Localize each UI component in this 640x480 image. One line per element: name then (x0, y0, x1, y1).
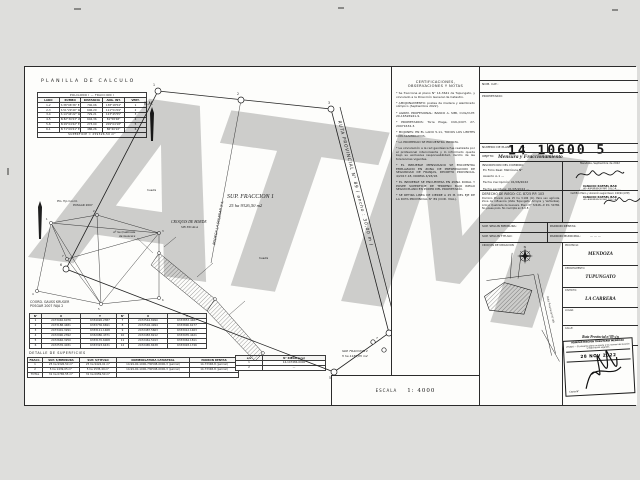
dominio-row: INSCRIPCION DEL DOMINIO: En Folio Real: … (480, 162, 638, 191)
note-line: * LA PROPIEDAD SE ENCUENTRA INCULTA. (396, 141, 475, 145)
signature-block-1: Mendoza, Septiembre de 2022 IGNACIO RAFA… (563, 162, 637, 191)
departamento-value: TUPUNGATO (563, 275, 638, 280)
north-tick-icon (38, 201, 42, 239)
visado-stamp: ADMINISTRACION TRIBUTARIA MENDOZA VISADO… (563, 337, 636, 397)
provincia-row: PROVINCIA: MENDOZA (562, 243, 638, 266)
croquis-borde-title: CROQUIS DE BORDE (171, 220, 207, 224)
border-detail-sketch: CROQUIS DE BORDE SIN ESCALA Aº Sa Quebra… (112, 220, 264, 361)
note-line: * EL INMUEBLE MENSURADO SE ENCUENTRA EMP… (396, 164, 475, 178)
padron-municipal-label: PADRON MUNICIPAL: (550, 234, 581, 238)
propietario-row: PROPIETARIO: 14 10600 5 (480, 93, 638, 144)
registration-mark (338, 7, 344, 9)
registration-mark (612, 9, 618, 11)
sup-titulo-row: SUP. SEGUN TITULO: PADRON MUNICIPAL: — —… (480, 233, 638, 243)
road-edge (340, 107, 397, 329)
propietario-label: PROPIETARIO: (482, 94, 503, 98)
padron-municipal-value: — — — (590, 234, 601, 238)
lugar-row: LUGAR: (562, 308, 638, 326)
distrito-label: DISTRITO: (565, 289, 577, 292)
riego-row: DERECHO DE RIEGO: CC. 8725 P.P. 103 Domi… (480, 191, 638, 223)
vertex-number: 7 (376, 336, 378, 340)
plano-number-label: NUMERO DE PLANO: (482, 145, 513, 149)
lugar-label: LUGAR: (565, 309, 574, 312)
riego-text: Dominio Privado para 25 ha 3.196 (m). Pa… (482, 197, 560, 210)
north-arrow-icon: N.M. (144, 101, 154, 141)
certifications-notes: * Se fracciona el plano N° 14-3641 de Tu… (392, 88, 479, 202)
sup-mensura-label: SUP. SEGUN MENSURA: (482, 224, 517, 228)
note-line: * SE RETIRA LINEA DE CIERRE A 25 M. DEL … (396, 194, 475, 201)
location-sketch: Ruta Provincial N° 89 (480, 243, 562, 405)
note-line: Asiento A-1 — (483, 175, 529, 179)
objeto-value: Mensura y Fraccionamiento (498, 154, 563, 160)
neighbour-label: BODEGA LA SOLEDAD S.A. (212, 200, 225, 245)
sup-mensura-row: SUP. SEGUN MENSURA: PADRON RENTAS: (480, 223, 638, 233)
certifications-column: CERTIFICACIONES, OBSERVACIONES Y NOTAS *… (391, 67, 479, 375)
signature-block-2: Certifico Plano y ubicación según Resol.… (563, 192, 637, 222)
node-label: 1 (46, 217, 48, 221)
distrito-row: DISTRITO: LA CARRERA (562, 288, 638, 308)
vertex-number: 3 (328, 101, 330, 105)
signature-date: Mendoza, Septiembre de 2022 (563, 162, 637, 165)
plano-number-value: 14- (520, 145, 525, 149)
calle-label: CALLE: (565, 327, 573, 330)
vertex-number: 1 (153, 83, 155, 87)
parcel-title: SUP. FRACCION 1 (227, 194, 274, 200)
top-strip (480, 67, 638, 81)
vertex-number: 2 (237, 92, 239, 96)
certifications-title: CERTIFICACIONES, OBSERVACIONES Y NOTAS (392, 80, 479, 88)
plan-sheet: PLANILLA DE CALCULO POLIGONO I — FRACCIO… (24, 66, 636, 406)
objeto-row: OBJETO: Mensura y Fraccionamiento (480, 153, 638, 162)
note-line: * MOJONES: EN EL LADO 5-11, TODOS LOS LI… (396, 131, 475, 138)
note-line: * EL INMUEBLE SE ENCUENTRA EN ZONA RURAL… (396, 181, 475, 192)
plano-number-row: NUMERO DE PLANO: 14- (480, 144, 638, 153)
scale-value: 1: 4000 (407, 388, 435, 394)
croquis-borde-sub: SIN ESCALA (181, 225, 198, 229)
provincia-value: MENDOZA (563, 252, 638, 257)
node-label: 4 (32, 292, 34, 296)
note-line: * AGRIM. PROFESIONAL: BANCO A. SIMI, CUI… (396, 112, 475, 119)
departamento-row: DEPARTAMENTO: TUPUNGATO (562, 266, 638, 288)
note-line: Fecha inscripción: 01/06/2022 (483, 181, 529, 185)
scanned-plan-page: PLANILLA DE CALCULO POLIGONO I — FRACCIO… (0, 0, 640, 480)
certifications-title-line: OBSERVACIONES Y NOTAS (408, 84, 463, 88)
note-line: * Se fracciona el plano N° 14-3641 de Tu… (396, 92, 475, 99)
padron-rentas-label: PADRON RENTAS: (550, 224, 576, 228)
provincia-label: PROVINCIA: (565, 244, 579, 247)
objeto-label: OBJETO: (482, 154, 494, 158)
huella-label: huella (147, 188, 156, 192)
distrito-value: LA CARRERA (563, 297, 638, 302)
registration-mark (7, 168, 9, 175)
note-line: * AMOJONAMIENTO: postes de madera y alam… (396, 102, 475, 109)
road-label: RUTA PROVINCIAL N° 89 ( ancho : 30,00 m … (336, 120, 374, 247)
table-cell: TOTAL (28, 372, 43, 377)
parcel2-area: 5 ha 1439,05 m2 (342, 354, 368, 358)
huella-label: huella (259, 256, 268, 260)
note-line: * PROPIETARIOS: Torre Plage, CUIL/CUIT. … (396, 121, 475, 128)
vertex-number: 6 (60, 263, 62, 267)
registration-mark (74, 8, 81, 10)
title-block: NOM. CAT.: PROPIETARIO: 14 10600 5 NUMER… (479, 67, 637, 405)
scale-box: ESCALA 1: 4000 (331, 375, 479, 405)
riego-label: DERECHO DE RIEGO: CC. 8725 P.P. 103 (482, 192, 544, 196)
signature-scribble-icon (574, 168, 626, 180)
sup-titulo-label: SUP. SEGUN TITULO: (482, 234, 513, 238)
departamento-label: DEPARTAMENTO: (565, 267, 585, 270)
note-line: * La vinculación a la red geodésica fue … (396, 147, 475, 161)
arroyo-label: de Guevara (119, 234, 136, 238)
parcel-area: 25 ha 9326,50 m2 (229, 203, 263, 209)
dominio-label: INSCRIPCION DEL DOMINIO: (482, 163, 524, 167)
nom-cat-label: NOM. CAT.: (482, 82, 498, 86)
parcel2-title: SUP. FRACCION 2 (342, 349, 368, 353)
note-line: En Folio Real: Matrícula N° (483, 169, 529, 173)
croquis-road-label: Ruta Provincial N° 89 (546, 296, 556, 324)
scale-label: ESCALA (376, 388, 398, 393)
signature-scribble-icon (600, 195, 640, 206)
stamp-scribble-icon (576, 343, 628, 394)
nom-cat-row: NOM. CAT.: (480, 81, 638, 93)
ubicacion-block: CROQUIS DE UBICACION N (480, 243, 638, 405)
table-cell: 6 (30, 343, 42, 348)
